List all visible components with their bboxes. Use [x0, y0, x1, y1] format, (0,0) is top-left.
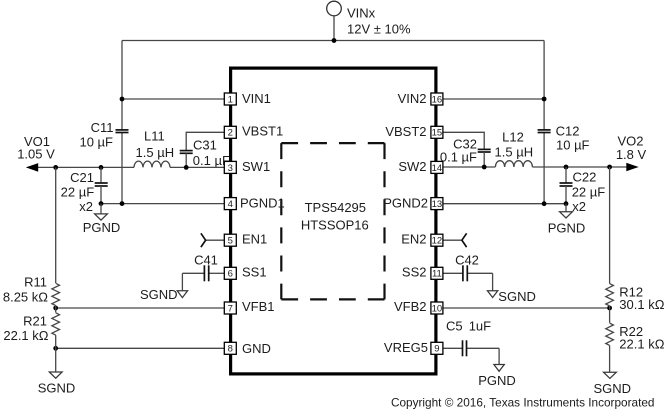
- svg-text:VBST1: VBST1: [242, 124, 283, 139]
- svg-text:3: 3: [228, 163, 233, 174]
- svg-text:30.1 kΩ: 30.1 kΩ: [619, 297, 664, 312]
- svg-text:SGND: SGND: [498, 289, 536, 304]
- svg-text:6: 6: [228, 269, 233, 280]
- svg-text:0.1 µF: 0.1 µF: [440, 149, 477, 164]
- svg-text:HTSSOP16: HTSSOP16: [301, 217, 369, 232]
- svg-text:SW1: SW1: [242, 159, 270, 174]
- svg-text:7: 7: [228, 303, 233, 314]
- svg-text:L12: L12: [502, 130, 524, 145]
- svg-text:SS2: SS2: [402, 265, 427, 280]
- svg-text:R11: R11: [24, 274, 47, 289]
- svg-text:1.05 V: 1.05 V: [17, 147, 55, 162]
- svg-text:VFB1: VFB1: [242, 299, 275, 314]
- svg-text:1.5 µH: 1.5 µH: [136, 145, 175, 160]
- svg-text:PGND: PGND: [548, 221, 586, 236]
- svg-text:C41: C41: [194, 253, 218, 268]
- svg-text:C12: C12: [556, 124, 580, 139]
- svg-text:VIN1: VIN1: [242, 91, 271, 106]
- svg-text:PGND2: PGND2: [383, 195, 428, 210]
- svg-text:8: 8: [228, 344, 233, 355]
- svg-text:VREG5: VREG5: [384, 340, 428, 355]
- svg-text:TPS54295: TPS54295: [305, 200, 366, 215]
- svg-text:SS1: SS1: [242, 265, 267, 280]
- svg-text:x2: x2: [79, 199, 93, 214]
- svg-text:EN1: EN1: [242, 232, 267, 247]
- svg-text:4: 4: [228, 199, 233, 210]
- svg-text:PGND: PGND: [83, 220, 121, 235]
- svg-text:C22: C22: [573, 170, 597, 185]
- svg-text:22 µF: 22 µF: [572, 184, 606, 199]
- svg-text:10 µF: 10 µF: [556, 137, 590, 152]
- svg-text:SW2: SW2: [398, 159, 426, 174]
- svg-text:VINx: VINx: [347, 6, 376, 21]
- svg-text:10 µF: 10 µF: [79, 134, 113, 149]
- svg-text:10: 10: [432, 303, 443, 314]
- svg-text:C31: C31: [193, 138, 217, 153]
- svg-text:C21: C21: [70, 170, 94, 185]
- svg-text:8.25 kΩ: 8.25 kΩ: [3, 290, 48, 305]
- svg-text:VBST2: VBST2: [385, 124, 426, 139]
- svg-text:SGND: SGND: [38, 381, 76, 396]
- svg-text:L11: L11: [144, 129, 165, 144]
- svg-text:C11: C11: [91, 120, 114, 135]
- svg-text:5: 5: [228, 236, 233, 247]
- svg-text:1.5 µH: 1.5 µH: [495, 144, 534, 159]
- svg-text:PGND: PGND: [478, 373, 516, 388]
- svg-text:13: 13: [432, 199, 443, 210]
- svg-text:C5: C5: [446, 319, 463, 334]
- svg-text:12: 12: [432, 236, 443, 247]
- svg-text:GND: GND: [242, 341, 271, 356]
- svg-text:11: 11: [432, 269, 442, 280]
- svg-text:SGND: SGND: [140, 287, 178, 302]
- svg-text:EN2: EN2: [401, 232, 426, 247]
- svg-text:1.8 V: 1.8 V: [616, 147, 647, 162]
- svg-text:22.1 kΩ: 22.1 kΩ: [3, 328, 48, 343]
- svg-text:2: 2: [228, 128, 233, 139]
- svg-text:PGND1: PGND1: [240, 195, 285, 210]
- svg-text:1uF: 1uF: [469, 319, 491, 334]
- svg-text:R21: R21: [23, 314, 47, 329]
- svg-text:14: 14: [432, 163, 443, 174]
- svg-text:C42: C42: [455, 252, 479, 267]
- svg-text:x2: x2: [572, 199, 586, 214]
- svg-text:22 µF: 22 µF: [61, 184, 95, 199]
- svg-text:VO2: VO2: [617, 133, 643, 148]
- svg-text:VIN2: VIN2: [398, 91, 427, 106]
- svg-text:Copyright © 2016, Texas Instru: Copyright © 2016, Texas Instruments Inco…: [391, 395, 655, 409]
- svg-text:12V ± 10%: 12V ± 10%: [347, 22, 411, 37]
- svg-text:1: 1: [228, 94, 233, 105]
- svg-text:16: 16: [432, 94, 443, 105]
- svg-text:SGND: SGND: [594, 381, 632, 396]
- svg-text:VFB2: VFB2: [394, 299, 427, 314]
- svg-text:22.1 kΩ: 22.1 kΩ: [619, 336, 664, 351]
- svg-text:9: 9: [434, 344, 439, 355]
- svg-text:15: 15: [432, 128, 443, 139]
